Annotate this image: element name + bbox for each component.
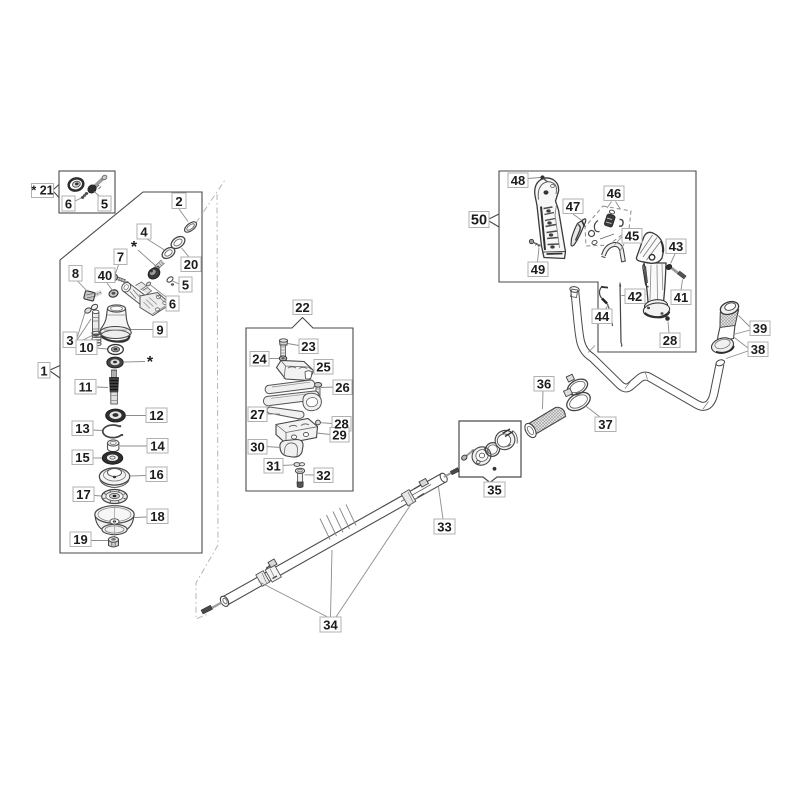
svg-text:5: 5: [182, 278, 189, 293]
svg-text:22: 22: [295, 300, 309, 315]
svg-text:1: 1: [40, 364, 47, 379]
svg-text:47: 47: [566, 199, 580, 214]
svg-text:19: 19: [73, 532, 87, 547]
svg-text:42: 42: [628, 289, 642, 304]
svg-text:5: 5: [101, 197, 108, 212]
svg-text:37: 37: [598, 417, 612, 432]
svg-text:44: 44: [595, 309, 610, 324]
svg-text:8: 8: [72, 266, 79, 281]
svg-text:45: 45: [625, 229, 639, 244]
svg-text:43: 43: [669, 239, 683, 254]
svg-text:*: *: [147, 354, 154, 371]
svg-text:27: 27: [250, 407, 264, 422]
svg-text:4: 4: [140, 225, 148, 240]
svg-text:41: 41: [674, 290, 688, 305]
svg-text:10: 10: [79, 340, 93, 355]
svg-text:28: 28: [663, 333, 677, 348]
svg-text:2: 2: [175, 194, 182, 209]
svg-text:20: 20: [184, 257, 198, 272]
svg-text:6: 6: [65, 197, 72, 212]
svg-text:49: 49: [531, 262, 545, 277]
svg-text:40: 40: [98, 268, 112, 283]
svg-text:15: 15: [75, 450, 89, 465]
svg-text:12: 12: [149, 408, 163, 423]
svg-text:33: 33: [437, 520, 451, 535]
svg-text:* 21: * 21: [31, 184, 53, 198]
svg-text:*: *: [131, 239, 138, 256]
svg-text:32: 32: [316, 468, 330, 483]
svg-text:38: 38: [751, 342, 765, 357]
svg-text:18: 18: [150, 509, 164, 524]
svg-text:25: 25: [316, 360, 330, 375]
svg-text:7: 7: [117, 250, 124, 265]
svg-text:23: 23: [301, 339, 315, 354]
svg-text:26: 26: [335, 380, 349, 395]
svg-text:13: 13: [75, 421, 89, 436]
svg-text:9: 9: [156, 323, 163, 338]
svg-text:35: 35: [487, 483, 501, 498]
svg-text:50: 50: [471, 213, 487, 229]
svg-text:24: 24: [252, 352, 267, 367]
svg-text:3: 3: [66, 333, 73, 348]
svg-text:31: 31: [266, 459, 280, 474]
svg-text:16: 16: [149, 467, 163, 482]
svg-text:6: 6: [169, 297, 176, 312]
svg-text:34: 34: [323, 618, 338, 633]
svg-text:30: 30: [250, 440, 264, 455]
svg-text:29: 29: [332, 428, 346, 443]
svg-text:14: 14: [150, 439, 165, 454]
svg-text:39: 39: [753, 321, 767, 336]
svg-text:48: 48: [511, 173, 525, 188]
svg-text:46: 46: [607, 186, 621, 201]
svg-text:11: 11: [79, 380, 93, 395]
svg-text:17: 17: [76, 487, 90, 502]
svg-text:36: 36: [537, 377, 551, 392]
